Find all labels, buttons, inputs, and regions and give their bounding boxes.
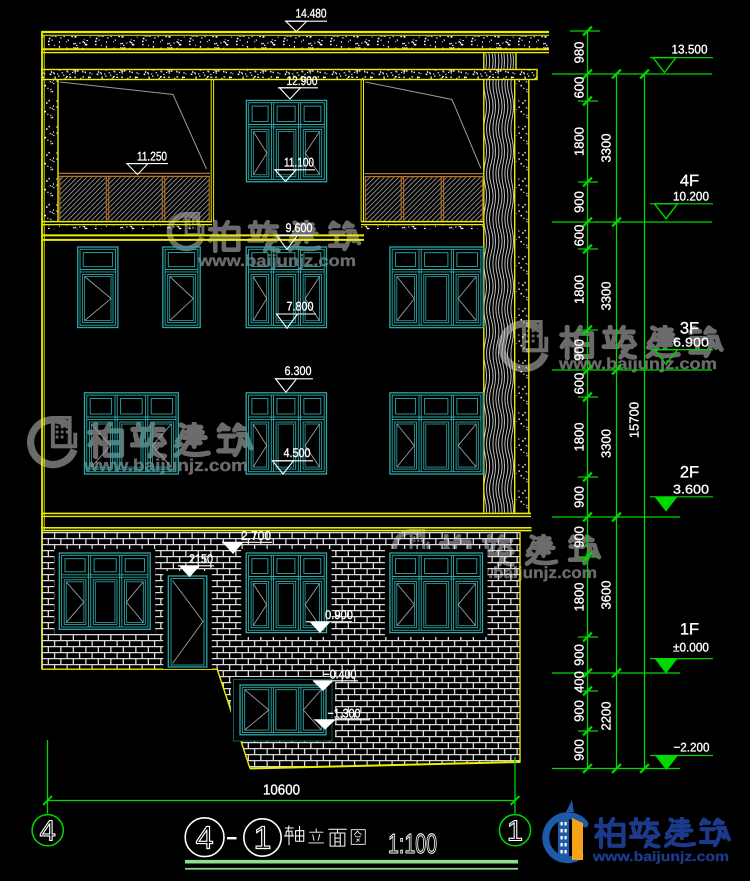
svg-text:2150: 2150 [189, 552, 213, 566]
svg-text:900: 900 [572, 526, 587, 548]
svg-text:6.300: 6.300 [285, 364, 312, 378]
svg-text:600: 600 [572, 373, 587, 395]
svg-text:400: 400 [572, 671, 587, 693]
svg-text:900: 900 [572, 191, 587, 213]
svg-text:1800: 1800 [572, 583, 587, 612]
svg-text:3.600: 3.600 [673, 483, 709, 497]
svg-text:11.250: 11.250 [137, 150, 167, 164]
svg-text:3300: 3300 [599, 282, 614, 311]
svg-text:2.700: 2.700 [241, 529, 271, 543]
svg-text:7.800: 7.800 [287, 300, 314, 314]
svg-text:2F: 2F [680, 464, 699, 482]
svg-text:12.900: 12.900 [287, 74, 318, 88]
svg-text:10.200: 10.200 [673, 190, 709, 204]
svg-text:−0.400: −0.400 [324, 667, 357, 681]
svg-text:900: 900 [572, 739, 587, 761]
svg-text:15700: 15700 [627, 402, 642, 438]
svg-text:11.100: 11.100 [284, 156, 314, 170]
svg-text:−1.300: −1.300 [328, 706, 361, 720]
svg-text:13.500: 13.500 [672, 43, 708, 57]
svg-text:4: 4 [196, 820, 214, 856]
svg-text:1800: 1800 [572, 275, 587, 304]
svg-text:900: 900 [572, 486, 587, 508]
svg-text:1: 1 [254, 820, 272, 856]
svg-text:3300: 3300 [599, 429, 614, 458]
svg-text:1:100: 1:100 [388, 828, 437, 859]
svg-text:4F: 4F [680, 172, 699, 190]
svg-text:14.480: 14.480 [296, 7, 327, 21]
svg-text:1: 1 [507, 816, 523, 848]
svg-text:−2.200: −2.200 [674, 740, 710, 754]
svg-text:www.baijunjz.com: www.baijunjz.com [592, 849, 729, 864]
svg-text:2200: 2200 [599, 702, 614, 731]
svg-text:980: 980 [572, 42, 587, 64]
svg-text:0.900: 0.900 [325, 608, 353, 622]
svg-text:600: 600 [572, 77, 587, 99]
svg-text:10600: 10600 [263, 783, 300, 799]
svg-text:600: 600 [572, 225, 587, 247]
svg-text:3300: 3300 [599, 134, 614, 163]
svg-text:1800: 1800 [572, 423, 587, 452]
svg-text:4.500: 4.500 [284, 446, 311, 460]
svg-text:6.900: 6.900 [673, 335, 709, 349]
svg-text:4: 4 [40, 816, 56, 848]
svg-text:9.600: 9.600 [286, 221, 313, 235]
svg-text:1F: 1F [680, 621, 699, 639]
svg-text:1800: 1800 [572, 127, 587, 156]
svg-text:900: 900 [572, 700, 587, 722]
svg-text:900: 900 [572, 644, 587, 666]
svg-text:www.baijunjz.com: www.baijunjz.com [197, 253, 356, 270]
svg-text:900: 900 [572, 339, 587, 361]
svg-text:3600: 3600 [599, 581, 614, 610]
svg-text:±0.000: ±0.000 [673, 641, 709, 655]
